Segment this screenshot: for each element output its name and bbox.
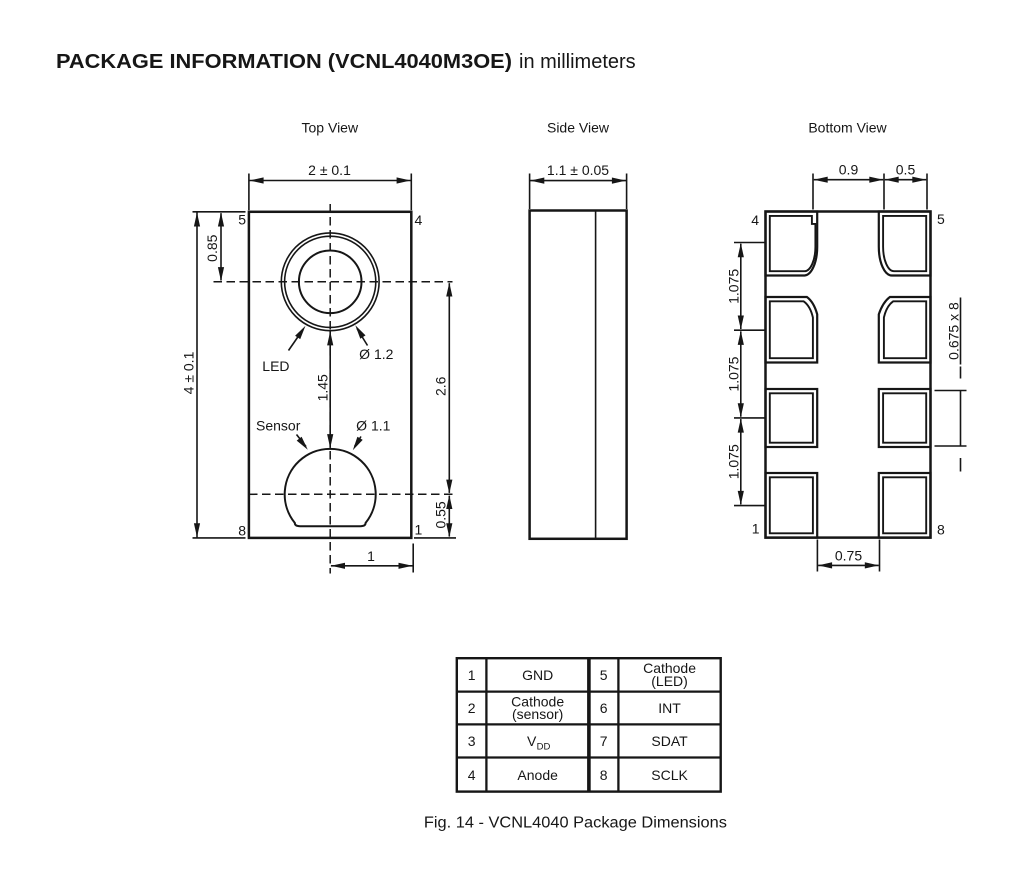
svg-text:Anode: Anode xyxy=(517,767,558,783)
svg-text:4 ± 0.1: 4 ± 0.1 xyxy=(181,351,197,394)
svg-text:0.55: 0.55 xyxy=(432,501,448,528)
svg-text:V: V xyxy=(527,733,537,749)
svg-text:5: 5 xyxy=(238,212,246,228)
svg-text:(LED): (LED) xyxy=(651,673,688,689)
svg-text:SDAT: SDAT xyxy=(651,733,688,749)
svg-text:4: 4 xyxy=(468,767,476,783)
svg-text:1.1 ± 0.05: 1.1 ± 0.05 xyxy=(547,162,609,178)
svg-text:Sensor: Sensor xyxy=(256,418,301,434)
svg-text:Top View: Top View xyxy=(302,120,359,136)
svg-text:LED: LED xyxy=(262,358,289,374)
svg-text:0.75: 0.75 xyxy=(835,547,862,563)
svg-text:5: 5 xyxy=(937,211,945,227)
svg-text:4: 4 xyxy=(751,212,759,228)
svg-text:0.85: 0.85 xyxy=(204,234,220,261)
svg-text:1: 1 xyxy=(468,667,476,683)
svg-text:1.075: 1.075 xyxy=(726,444,742,479)
svg-text:2: 2 xyxy=(468,700,476,716)
svg-text:4: 4 xyxy=(415,212,423,228)
svg-text:Fig. 14 - VCNL4040 Package Dim: Fig. 14 - VCNL4040 Package Dimensions xyxy=(424,815,727,832)
svg-text:2.6: 2.6 xyxy=(432,376,448,396)
svg-text:Bottom View: Bottom View xyxy=(808,120,887,136)
svg-text:2 ± 0.1: 2 ± 0.1 xyxy=(308,162,351,178)
svg-text:(sensor): (sensor) xyxy=(512,706,563,722)
svg-text:0.9: 0.9 xyxy=(839,162,859,178)
svg-text:7: 7 xyxy=(600,733,608,749)
svg-text:5: 5 xyxy=(600,667,608,683)
svg-text:3: 3 xyxy=(468,733,476,749)
svg-text:1.075: 1.075 xyxy=(726,269,742,304)
svg-text:1: 1 xyxy=(367,548,375,564)
svg-text:8: 8 xyxy=(600,767,608,783)
svg-text:8: 8 xyxy=(238,522,246,538)
svg-text:6: 6 xyxy=(600,700,608,716)
svg-text:PACKAGE INFORMATION (VCNL4040M: PACKAGE INFORMATION (VCNL4040M3OE) xyxy=(56,51,512,73)
svg-text:8: 8 xyxy=(937,521,945,537)
svg-text:Side View: Side View xyxy=(547,120,610,136)
svg-text:0.675 x 8: 0.675 x 8 xyxy=(946,302,962,360)
svg-text:SCLK: SCLK xyxy=(651,767,688,783)
svg-text:GND: GND xyxy=(522,667,553,683)
svg-text:1.075: 1.075 xyxy=(726,356,742,391)
svg-text:Ø 1.1: Ø 1.1 xyxy=(356,418,390,434)
svg-text:0.5: 0.5 xyxy=(896,162,916,178)
svg-text:DD: DD xyxy=(537,742,551,753)
svg-text:1: 1 xyxy=(415,522,423,538)
svg-text:in millimeters: in millimeters xyxy=(519,51,636,73)
svg-text:1.45: 1.45 xyxy=(315,374,331,401)
svg-text:1: 1 xyxy=(752,520,760,536)
svg-text:Ø 1.2: Ø 1.2 xyxy=(359,346,393,362)
svg-text:INT: INT xyxy=(658,700,681,716)
